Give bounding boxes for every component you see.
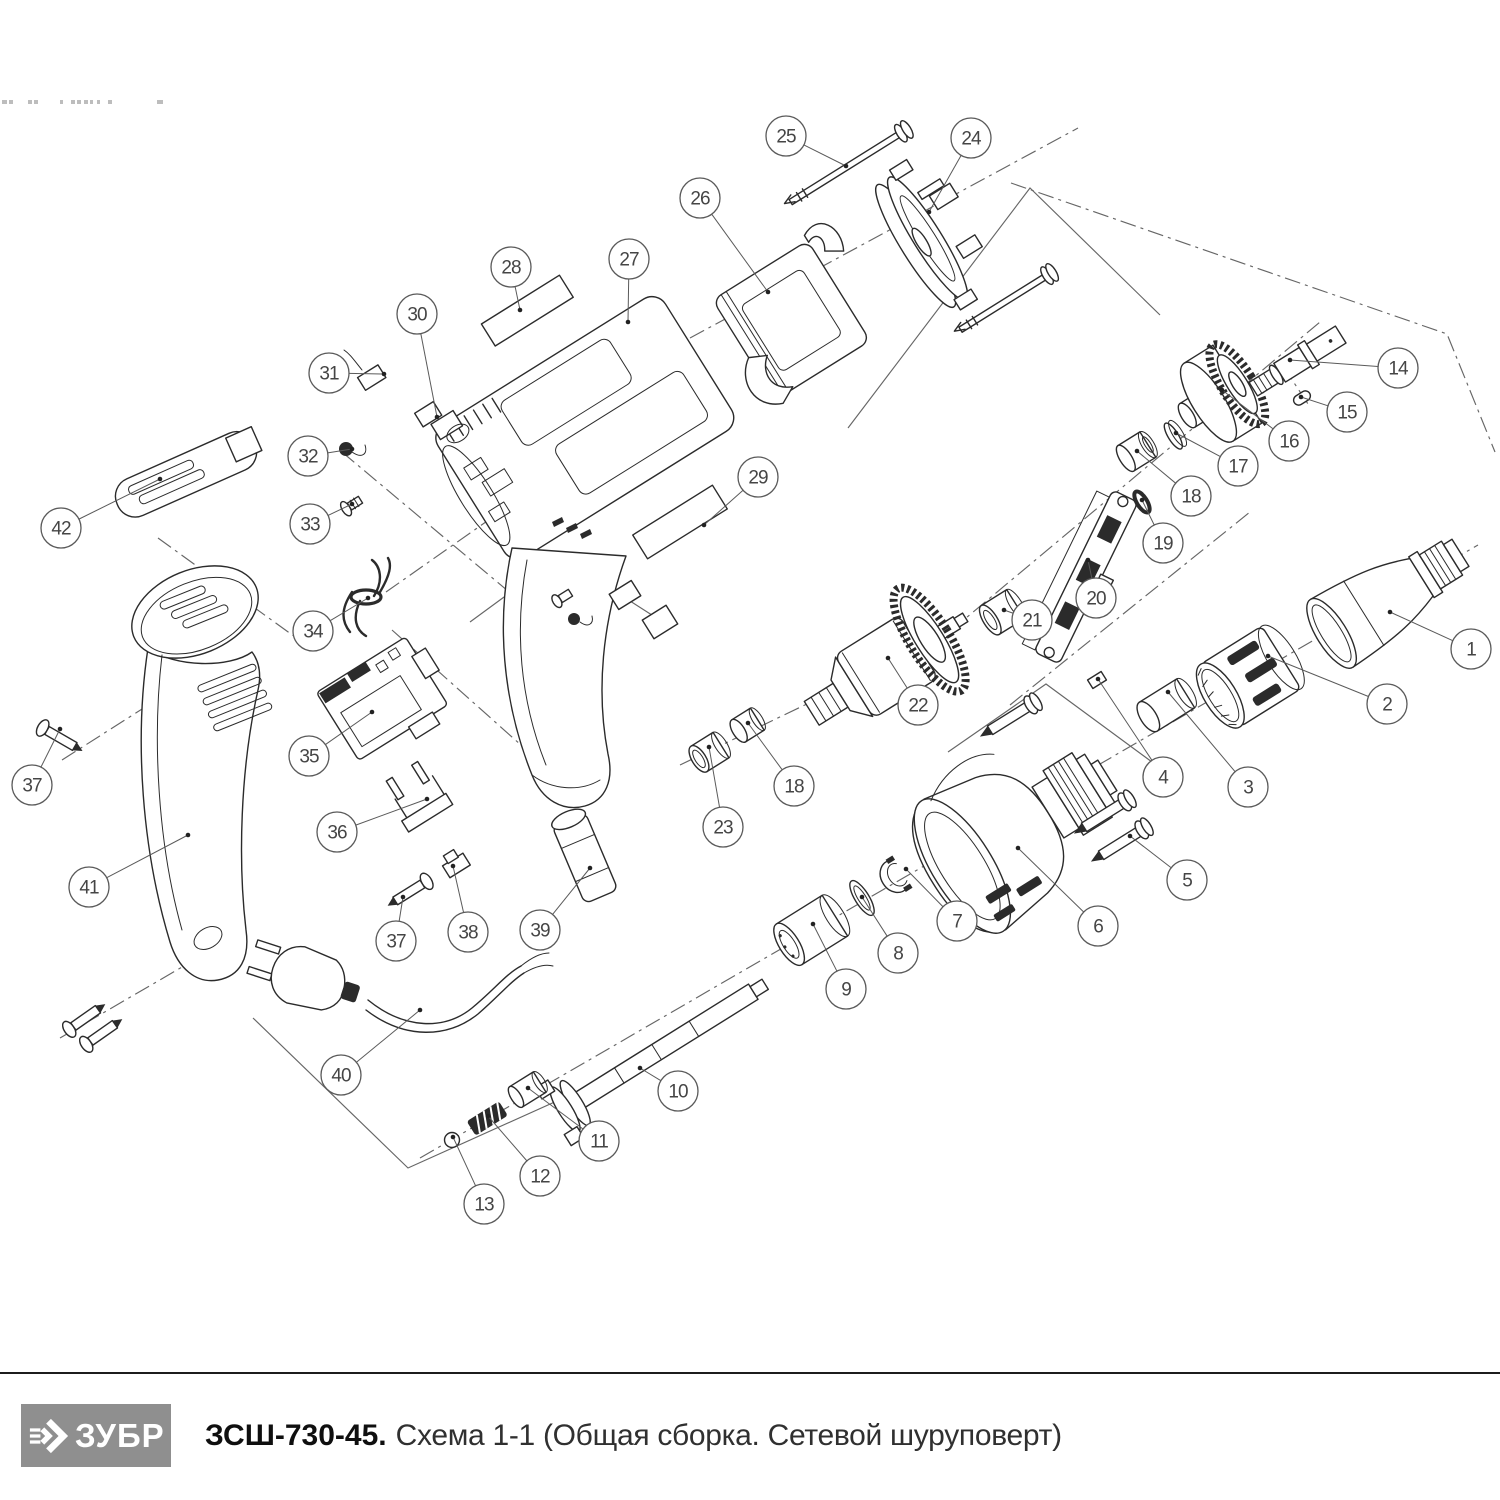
svg-text:6: 6 xyxy=(1093,917,1103,938)
part-41-handle-left xyxy=(118,548,273,980)
callout-33: 33 xyxy=(290,502,354,544)
part-27-housing-right xyxy=(421,291,739,808)
callout-39: 39 xyxy=(520,866,592,950)
part-42-top-cover xyxy=(109,424,266,523)
callout-13: 13 xyxy=(451,1135,504,1224)
svg-text:12: 12 xyxy=(530,1167,550,1188)
svg-text:38: 38 xyxy=(458,923,478,944)
exploded-diagram-svg: 1234567891011121314151617181920212223182… xyxy=(0,0,1500,1500)
svg-text:10: 10 xyxy=(668,1082,688,1103)
svg-text:31: 31 xyxy=(319,364,339,385)
svg-text:32: 32 xyxy=(298,447,318,468)
callout-5: 5 xyxy=(1128,834,1207,900)
callout-26: 26 xyxy=(680,178,770,294)
svg-text:16: 16 xyxy=(1279,432,1299,453)
part-7-clip xyxy=(873,855,912,899)
svg-text:39: 39 xyxy=(530,921,550,942)
part-9-bushing xyxy=(768,891,855,970)
part-31-brush xyxy=(344,350,386,390)
svg-text:5: 5 xyxy=(1182,871,1192,892)
svg-text:18: 18 xyxy=(1181,487,1201,508)
svg-text:28: 28 xyxy=(501,258,521,279)
svg-text:34: 34 xyxy=(303,622,324,643)
svg-text:29: 29 xyxy=(748,468,768,489)
callout-18: 18 xyxy=(746,721,814,806)
part-22-armature xyxy=(780,566,997,764)
schema-caption: Схема 1-1 (Общая сборка. Сетевой шурупов… xyxy=(396,1419,1062,1453)
zubr-logo: ЗУБР xyxy=(21,1404,171,1467)
faint-top-left-marks xyxy=(2,100,163,104)
svg-text:11: 11 xyxy=(590,1132,608,1153)
svg-text:24: 24 xyxy=(961,129,982,150)
part-2-torque-ring xyxy=(1187,619,1313,736)
callout-25: 25 xyxy=(766,116,848,168)
callout-24: 24 xyxy=(927,118,991,214)
footer: ЗУБР ЗСШ-730-45. Схема 1-1 (Общая сборка… xyxy=(0,1372,1500,1500)
svg-text:23: 23 xyxy=(713,818,733,839)
svg-text:30: 30 xyxy=(407,305,427,326)
svg-text:20: 20 xyxy=(1086,589,1106,610)
svg-text:26: 26 xyxy=(690,189,710,210)
part-36-bracket xyxy=(379,758,452,832)
svg-text:37: 37 xyxy=(386,932,406,953)
part-24-brush-plate xyxy=(862,147,1009,320)
svg-text:15: 15 xyxy=(1337,403,1357,424)
zubr-logo-icon xyxy=(28,1414,70,1458)
svg-text:19: 19 xyxy=(1153,534,1173,555)
svg-text:41: 41 xyxy=(79,878,99,899)
page: 1234567891011121314151617181920212223182… xyxy=(0,0,1500,1500)
part-14-output-spindle xyxy=(1246,323,1348,401)
handle-mount-screws xyxy=(60,997,127,1055)
callout-40: 40 xyxy=(321,1008,422,1095)
callout-10: 10 xyxy=(638,1066,698,1111)
part-3-sleeve xyxy=(1133,675,1201,735)
svg-text:40: 40 xyxy=(331,1066,351,1087)
svg-text:27: 27 xyxy=(619,250,639,271)
svg-text:4: 4 xyxy=(1158,768,1169,789)
callout-32: 32 xyxy=(288,436,354,476)
svg-text:36: 36 xyxy=(327,823,347,844)
svg-text:35: 35 xyxy=(299,747,319,768)
svg-text:25: 25 xyxy=(776,127,796,148)
svg-text:22: 22 xyxy=(908,696,928,717)
svg-text:2: 2 xyxy=(1382,695,1392,716)
zubr-logo-text: ЗУБР xyxy=(75,1419,165,1452)
svg-text:13: 13 xyxy=(474,1195,494,1216)
callout-12: 12 xyxy=(486,1114,560,1196)
footer-title: ЗСШ-730-45. Схема 1-1 (Общая сборка. Сет… xyxy=(205,1404,1062,1467)
part-12-spring xyxy=(467,1101,508,1136)
callout-38: 38 xyxy=(448,864,488,952)
svg-text:1: 1 xyxy=(1466,640,1476,661)
svg-text:37: 37 xyxy=(22,776,42,797)
callout-8: 8 xyxy=(860,895,918,973)
part-26-stator xyxy=(694,217,899,414)
callout-34: 34 xyxy=(293,596,370,651)
model-number: ЗСШ-730-45. xyxy=(205,1419,387,1453)
callout-37: 37 xyxy=(12,727,62,805)
part-29-label-plate xyxy=(633,485,728,559)
svg-text:17: 17 xyxy=(1228,457,1248,478)
part-39-capacitor xyxy=(549,805,618,904)
footer-divider xyxy=(0,1372,1500,1374)
part-37-screw-b xyxy=(383,871,436,913)
svg-text:14: 14 xyxy=(1388,359,1409,380)
part-28-label-plate xyxy=(481,275,573,346)
svg-text:3: 3 xyxy=(1243,778,1253,799)
svg-text:8: 8 xyxy=(893,944,903,965)
part-10-spindle-shaft xyxy=(535,955,783,1145)
part-37-screw-a xyxy=(34,718,87,759)
svg-text:7: 7 xyxy=(952,912,962,933)
part-20-carrier-plate xyxy=(1021,484,1148,669)
svg-text:42: 42 xyxy=(51,519,71,540)
svg-text:21: 21 xyxy=(1022,611,1042,632)
callout-30: 30 xyxy=(397,294,439,419)
part-35-switch xyxy=(316,631,463,770)
callout-18: 18 xyxy=(1135,449,1211,516)
svg-text:18: 18 xyxy=(784,777,804,798)
svg-text:9: 9 xyxy=(841,980,851,1001)
svg-text:33: 33 xyxy=(300,515,320,536)
